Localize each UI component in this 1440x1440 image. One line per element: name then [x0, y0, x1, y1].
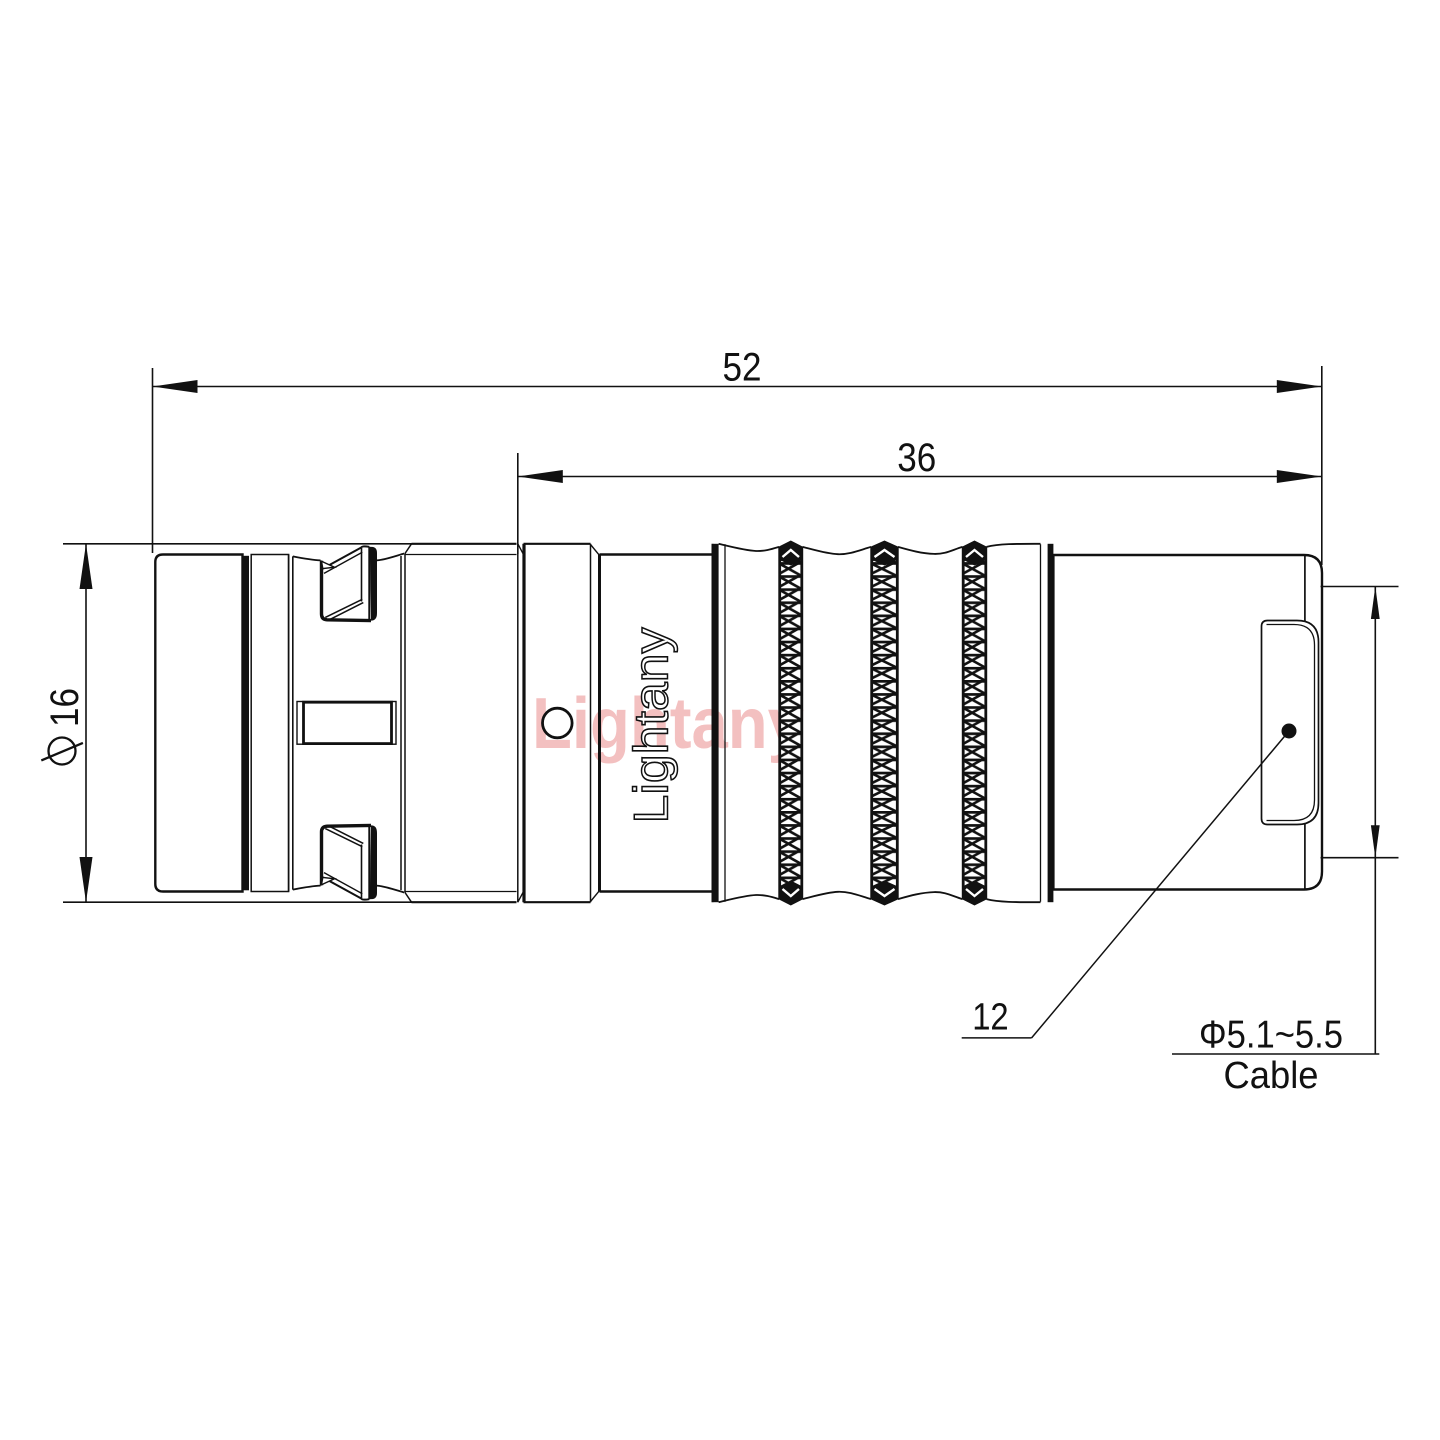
svg-text:12: 12 — [972, 997, 1009, 1039]
svg-text:Φ5.1~5.5: Φ5.1~5.5 — [1199, 1014, 1343, 1057]
svg-text:36: 36 — [897, 436, 936, 480]
svg-text:52: 52 — [723, 346, 762, 390]
svg-text:Lightany: Lightany — [626, 628, 679, 824]
svg-text:16: 16 — [43, 688, 87, 727]
svg-text:Cable: Cable — [1224, 1055, 1319, 1097]
